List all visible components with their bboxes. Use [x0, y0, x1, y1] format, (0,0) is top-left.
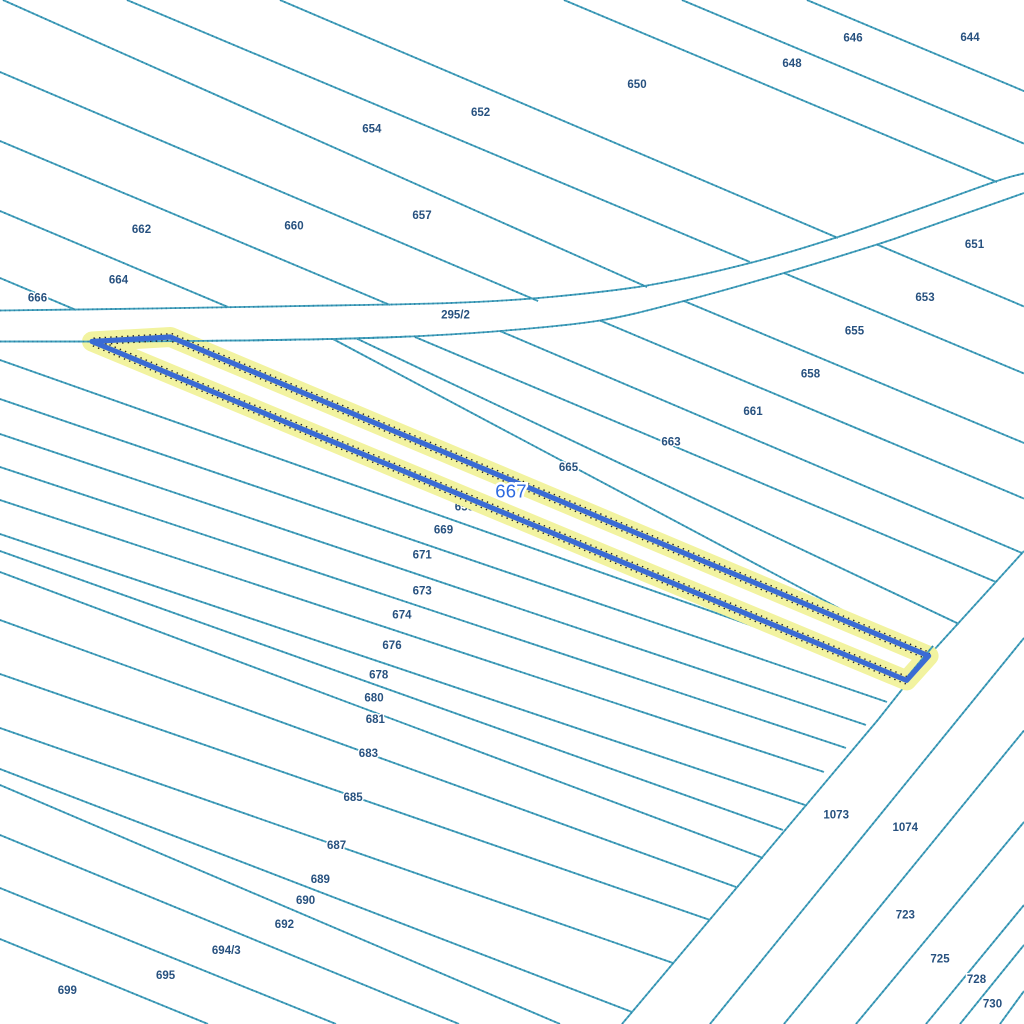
svg-text:681: 681 — [366, 714, 386, 726]
svg-text:694/3: 694/3 — [212, 945, 241, 957]
svg-text:654: 654 — [362, 124, 382, 136]
svg-text:671: 671 — [413, 550, 433, 562]
svg-text:667: 667 — [495, 481, 526, 502]
svg-text:652: 652 — [471, 107, 490, 119]
svg-text:683: 683 — [359, 748, 378, 760]
svg-text:676: 676 — [382, 640, 401, 652]
svg-text:662: 662 — [132, 224, 151, 236]
svg-text:725: 725 — [930, 954, 950, 966]
svg-text:664: 664 — [109, 275, 129, 287]
svg-text:651: 651 — [965, 239, 985, 251]
svg-text:660: 660 — [284, 221, 303, 233]
svg-text:658: 658 — [801, 369, 821, 381]
svg-text:723: 723 — [896, 910, 915, 922]
svg-text:650: 650 — [627, 79, 646, 91]
svg-text:730: 730 — [983, 999, 1002, 1011]
svg-text:655: 655 — [845, 326, 865, 338]
svg-text:295/2: 295/2 — [441, 309, 470, 321]
svg-text:690: 690 — [296, 895, 315, 907]
svg-text:669: 669 — [434, 525, 453, 537]
svg-text:663: 663 — [661, 437, 680, 449]
svg-text:680: 680 — [364, 693, 383, 705]
svg-text:728: 728 — [967, 974, 987, 986]
svg-text:689: 689 — [311, 874, 330, 886]
svg-text:666: 666 — [28, 293, 47, 305]
svg-text:653: 653 — [915, 292, 934, 304]
svg-text:661: 661 — [743, 406, 763, 418]
svg-text:673: 673 — [413, 585, 432, 597]
svg-text:674: 674 — [392, 610, 412, 622]
svg-text:648: 648 — [782, 58, 802, 70]
svg-text:685: 685 — [344, 792, 364, 804]
svg-text:657: 657 — [412, 210, 431, 222]
svg-text:646: 646 — [843, 33, 862, 45]
svg-text:1074: 1074 — [893, 822, 919, 834]
svg-text:687: 687 — [327, 840, 346, 852]
svg-text:678: 678 — [369, 669, 389, 681]
svg-text:1073: 1073 — [823, 810, 849, 822]
svg-text:644: 644 — [960, 32, 980, 44]
svg-text:665: 665 — [559, 462, 579, 474]
svg-text:699: 699 — [58, 985, 77, 997]
svg-text:695: 695 — [156, 970, 176, 982]
svg-text:692: 692 — [275, 919, 294, 931]
